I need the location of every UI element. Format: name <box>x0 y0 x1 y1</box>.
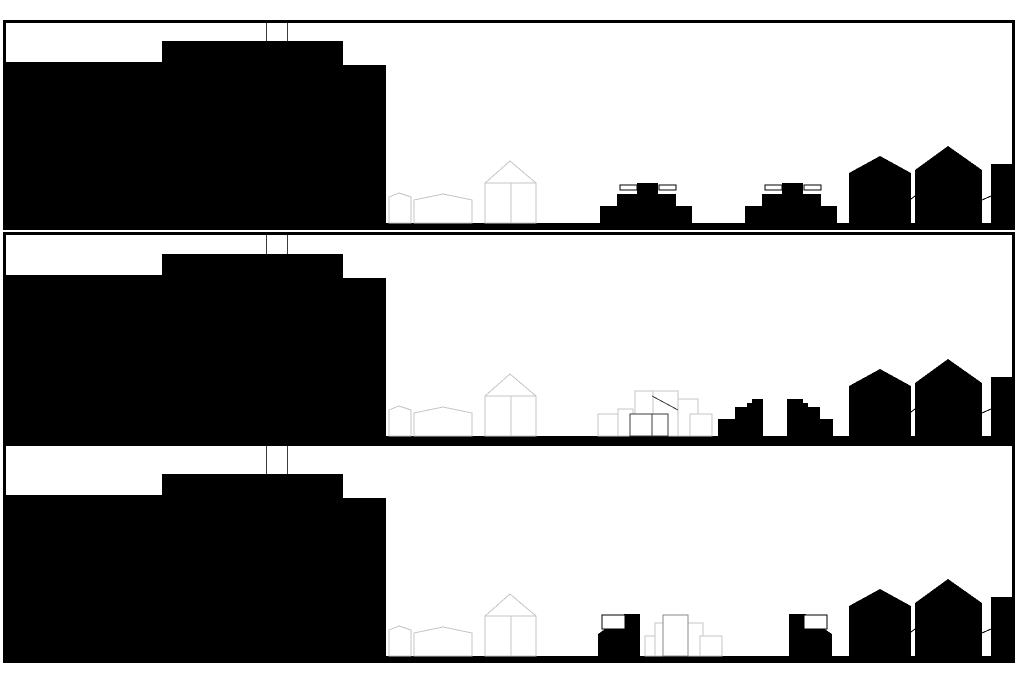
main-building-right-wing <box>343 278 386 436</box>
panel-border-top <box>3 232 1015 235</box>
stepped-tower-2-middle <box>762 194 821 206</box>
panel-border-top <box>3 20 1015 23</box>
ground-line <box>3 656 1015 663</box>
house-link-line-2 <box>982 629 991 633</box>
stepped-tower-1-cap <box>637 183 658 194</box>
main-building-right-wing <box>343 498 386 656</box>
corner-building <box>991 377 1015 436</box>
stepped-tower-2-ledge-left <box>765 185 782 190</box>
main-building-left-wing <box>3 275 162 436</box>
outline-shed-small <box>389 193 411 223</box>
study-massing-center-box <box>663 615 688 656</box>
gabled-house-1 <box>849 156 911 223</box>
house-link-line-2 <box>982 409 991 413</box>
outline-shed-small <box>389 626 411 656</box>
main-building-left-wing <box>3 62 162 223</box>
stepped-tower-1-ledge-right <box>659 185 676 190</box>
panel-border-top <box>3 443 1015 446</box>
gabled-house-1 <box>849 589 911 656</box>
outline-shed-wide <box>414 627 472 656</box>
gabled-house-2 <box>915 359 982 436</box>
shed-roof-building-left-clerestory <box>602 615 625 629</box>
split-tower-notch-left <box>747 399 752 403</box>
study-massing-box-6 <box>690 414 712 436</box>
shed-roof-building-left-tower <box>624 614 640 656</box>
elevation-panel-3 <box>3 443 1015 663</box>
rooftop-stack-left-line <box>266 235 267 254</box>
outline-shed-wide <box>414 194 472 223</box>
shed-roof-building-right-clerestory <box>804 615 827 629</box>
stepped-tower-2-base <box>745 206 837 223</box>
house-link-line-2 <box>982 196 991 200</box>
gabled-house-2 <box>915 146 982 223</box>
main-building-right-wing <box>343 65 386 223</box>
elevation-sheet-svg <box>0 0 1024 682</box>
gabled-house-2 <box>915 579 982 656</box>
rooftop-stack-right-line <box>287 23 288 41</box>
house-link-line-1 <box>911 196 915 199</box>
split-tower-notch-right <box>803 399 808 403</box>
stepped-tower-1-middle <box>617 194 676 206</box>
corner-building <box>991 164 1015 223</box>
elevation-panel-2 <box>3 232 1015 443</box>
stepped-tower-2-ledge-right <box>804 185 821 190</box>
main-building-center-block <box>162 41 343 223</box>
main-building-center-block <box>162 254 343 436</box>
main-building-center-block <box>162 474 343 656</box>
study-massing-main-box <box>630 414 668 436</box>
house-link-line-1 <box>911 409 915 412</box>
study-massing-box-5 <box>700 636 722 656</box>
rooftop-stack-left-line <box>266 446 267 474</box>
ground-line <box>3 223 1015 230</box>
elevation-study-sheet <box>0 0 1024 682</box>
stepped-tower-2-cap <box>782 183 803 194</box>
stepped-tower-1-base <box>600 206 692 223</box>
house-link-line-1 <box>911 629 915 632</box>
outline-shed-small <box>389 406 411 436</box>
split-tower-center-gap <box>763 399 787 436</box>
rooftop-stack-right-line <box>287 235 288 254</box>
main-building-left-wing <box>3 495 162 656</box>
outline-shed-wide <box>414 407 472 436</box>
shed-roof-building-right-tower <box>789 614 806 656</box>
rooftop-stack-right-line <box>287 446 288 474</box>
gabled-house-1 <box>849 369 911 436</box>
elevation-panel-1 <box>3 20 1015 230</box>
stepped-tower-1-ledge-left <box>620 185 637 190</box>
corner-building <box>991 597 1015 656</box>
ground-line <box>3 436 1015 443</box>
rooftop-stack-left-line <box>266 23 267 41</box>
study-massing-box-1 <box>598 414 618 436</box>
